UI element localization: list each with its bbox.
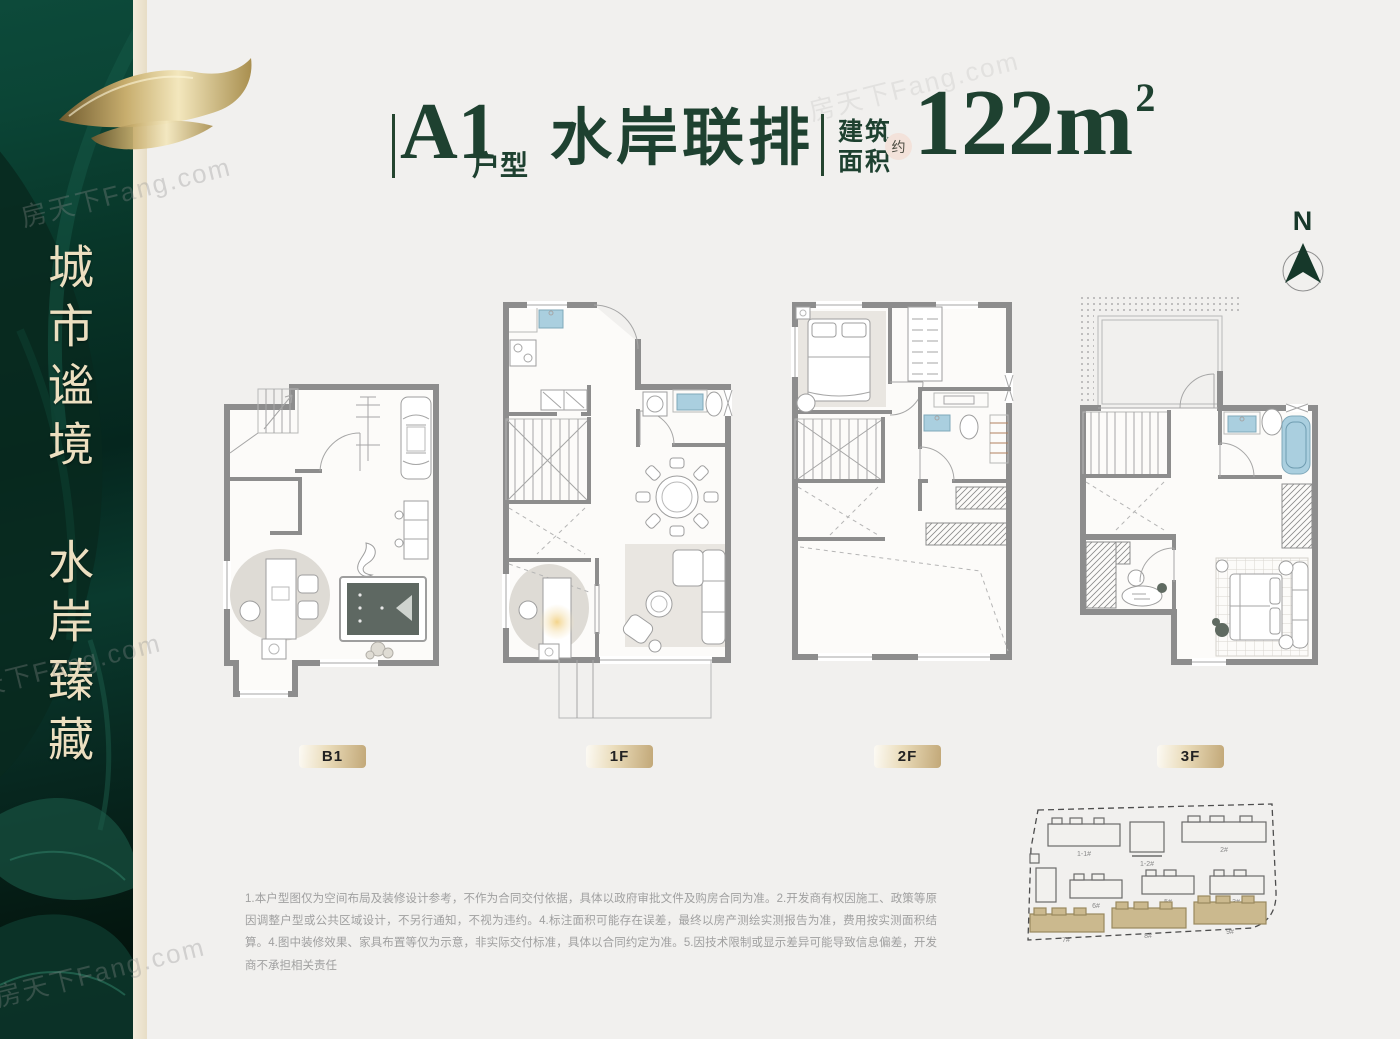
poster: 城市谧境 水岸臻藏 房天下Fang.com 房天下Fang.com 房天下Fan… (0, 0, 1400, 1039)
building-1-1: 1-1# (1048, 818, 1120, 858)
floor-badge-3f: 3F (1157, 745, 1224, 768)
site-structure-tall (1036, 868, 1056, 902)
svg-text:9#: 9# (1226, 929, 1234, 936)
floorplan-3f (1074, 290, 1322, 670)
north-label: N (1272, 206, 1334, 237)
floorplan-b1 (220, 381, 442, 699)
floor-badge-1f: 1F (586, 745, 653, 768)
area-exponent: 2 (1135, 78, 1155, 118)
site-structure-small (1030, 854, 1039, 863)
floor-badge-b1: B1 (299, 745, 366, 768)
building-9: 9# (1194, 896, 1266, 936)
title-divider-right (821, 114, 824, 176)
slogan-top: 城市谧境 (42, 243, 90, 479)
area-value: 122m 2 (914, 76, 1155, 170)
building-6: 6# (1070, 874, 1122, 910)
svg-text:7#: 7# (1062, 937, 1070, 944)
area-label-line2: 面积 (838, 150, 892, 175)
site-plan: 1-1# 1-2# 2# 6# 5# 3# (1014, 790, 1302, 960)
approx-badge: 约 (885, 133, 912, 160)
slogan-bottom: 水岸臻藏 (42, 538, 90, 774)
svg-text:8#: 8# (1144, 933, 1152, 940)
svg-text:1-2#: 1-2# (1140, 861, 1154, 868)
building-5: 5# (1142, 870, 1194, 906)
svg-text:2#: 2# (1220, 847, 1228, 854)
unit-type-label: 户型 (472, 144, 528, 184)
area-number: 122m (914, 76, 1133, 170)
floorplan-1f (497, 292, 742, 727)
building-7: 7# (1030, 908, 1104, 944)
building-2: 2# (1182, 816, 1266, 854)
brand-logo-swoosh-icon (55, 58, 270, 156)
building-1-2: 1-2# (1130, 822, 1164, 868)
building-8: 8# (1112, 902, 1186, 940)
floor-badge-2f: 2F (874, 745, 941, 768)
area-label-line1: 建筑 (838, 120, 892, 145)
title-divider-left (392, 114, 395, 178)
svg-text:6#: 6# (1092, 903, 1100, 910)
product-name: 水岸联排 (550, 108, 814, 170)
disclaimer-text: 1.本户型图仅为空间布局及装修设计参考，不作为合同交付依据，具体以政府审批文件及… (245, 888, 937, 978)
svg-text:1-1#: 1-1# (1077, 851, 1091, 858)
floorplan-2f (786, 297, 1018, 665)
